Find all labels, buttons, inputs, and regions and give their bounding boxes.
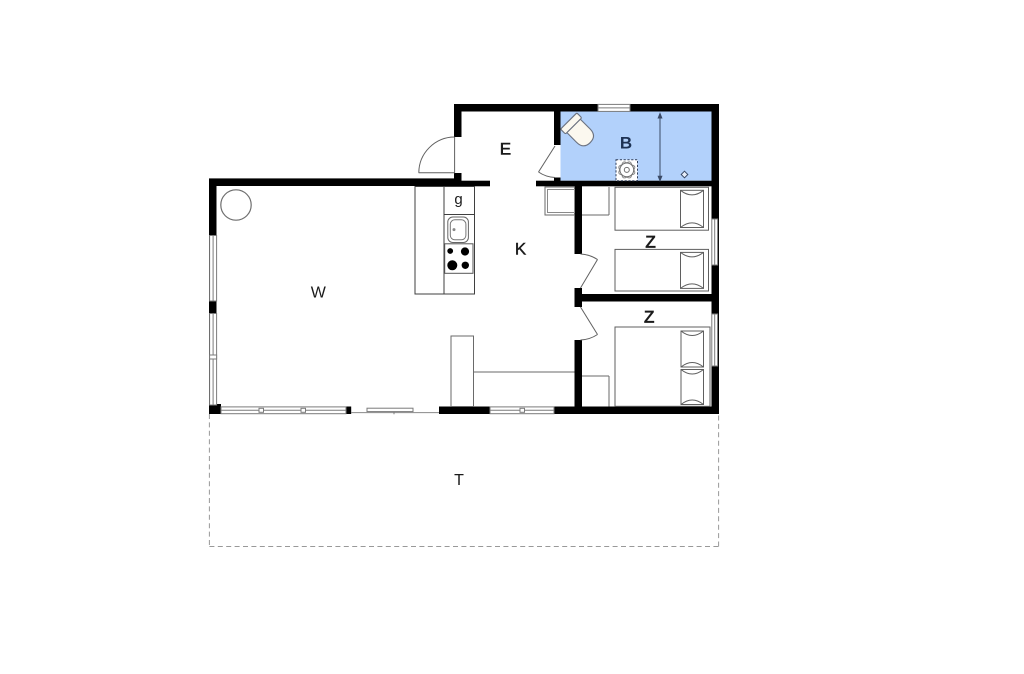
svg-text:B: B — [620, 134, 632, 153]
svg-text:K: K — [515, 240, 527, 259]
svg-text:E: E — [500, 139, 511, 158]
svg-text:g: g — [454, 191, 462, 208]
svg-text:Z: Z — [645, 233, 655, 252]
svg-text:T: T — [454, 472, 464, 489]
svg-text:W: W — [311, 285, 327, 302]
svg-text:Z: Z — [644, 308, 654, 327]
